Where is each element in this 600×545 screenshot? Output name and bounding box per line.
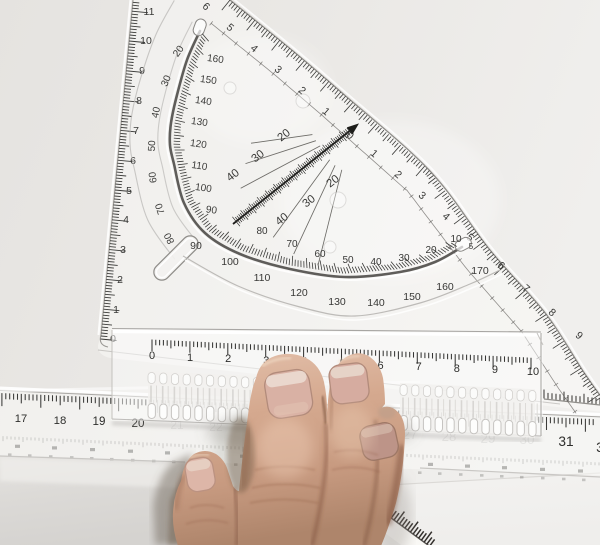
svg-text:120: 120 [290,287,308,299]
svg-text:80: 80 [256,226,268,237]
svg-text:10: 10 [140,35,152,47]
svg-text:110: 110 [254,272,271,284]
svg-text:1: 1 [113,304,119,316]
svg-text:11: 11 [144,6,155,18]
svg-text:4: 4 [123,214,129,226]
svg-text:160: 160 [436,281,454,293]
svg-text:90: 90 [190,240,202,252]
svg-text:60: 60 [314,249,326,260]
svg-text:170: 170 [471,265,489,277]
svg-text:8: 8 [136,95,142,107]
svg-text:140: 140 [367,297,385,309]
svg-text:5: 5 [469,242,474,251]
svg-text:7: 7 [133,125,139,137]
svg-text:31: 31 [558,434,573,449]
svg-text:5: 5 [126,185,132,197]
svg-text:3: 3 [120,244,126,256]
svg-text:130: 130 [328,296,346,308]
svg-text:18: 18 [54,415,67,427]
svg-text:17: 17 [15,413,27,425]
svg-text:90: 90 [205,204,218,217]
svg-text:1: 1 [187,352,193,364]
svg-text:9: 9 [492,364,498,376]
svg-text:100: 100 [221,256,239,268]
svg-text:50: 50 [147,140,158,152]
svg-text:40: 40 [370,257,382,268]
svg-text:50: 50 [342,255,354,266]
svg-text:60: 60 [147,171,160,184]
svg-text:2: 2 [225,353,231,365]
svg-text:3: 3 [596,439,600,455]
svg-text:30: 30 [398,253,410,264]
svg-text:7: 7 [416,361,422,373]
svg-text:19: 19 [93,415,106,428]
svg-text:10: 10 [450,234,462,245]
svg-text:2: 2 [117,274,123,286]
svg-text:10: 10 [527,366,539,378]
svg-text:70: 70 [286,239,298,250]
svg-text:150: 150 [403,291,421,303]
svg-text:8: 8 [454,363,460,375]
svg-text:20: 20 [425,245,437,256]
svg-text:110: 110 [191,160,209,173]
svg-text:0: 0 [149,350,155,362]
